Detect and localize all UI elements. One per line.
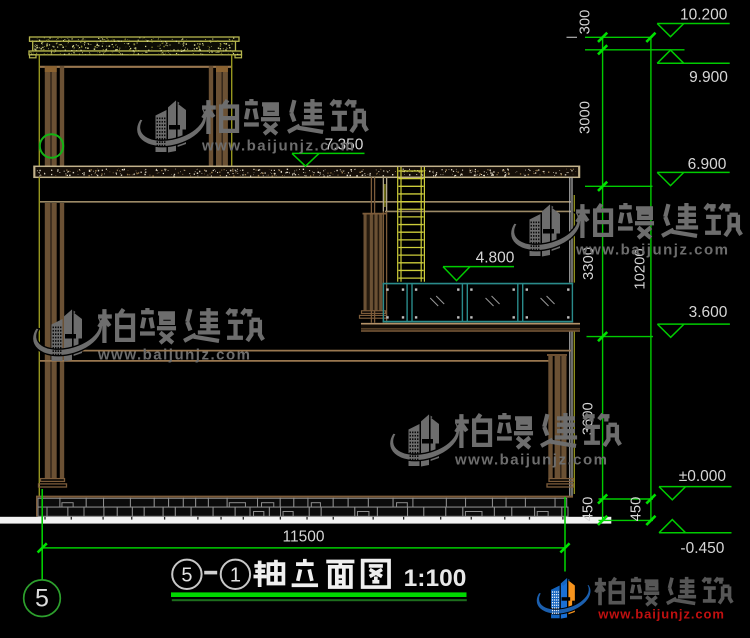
svg-text:www.baijunjz.com: www.baijunjz.com	[597, 606, 725, 621]
svg-text:±0.000: ±0.000	[679, 468, 727, 485]
svg-text:450: 450	[580, 497, 596, 522]
svg-text:6.900: 6.900	[688, 156, 727, 173]
svg-text:-0.450: -0.450	[680, 540, 724, 557]
svg-text:5: 5	[181, 564, 192, 586]
svg-text:9.900: 9.900	[689, 69, 728, 86]
svg-text:3.600: 3.600	[689, 304, 728, 321]
svg-text:11500: 11500	[283, 528, 325, 545]
svg-text:450: 450	[629, 497, 645, 522]
svg-text:5: 5	[35, 585, 49, 613]
svg-text:300: 300	[578, 10, 594, 35]
svg-text:1: 1	[230, 564, 241, 586]
svg-text:1:100: 1:100	[404, 565, 467, 592]
svg-text:4.800: 4.800	[476, 249, 515, 266]
svg-text:3000: 3000	[578, 101, 594, 134]
svg-text:10.200: 10.200	[680, 6, 728, 23]
